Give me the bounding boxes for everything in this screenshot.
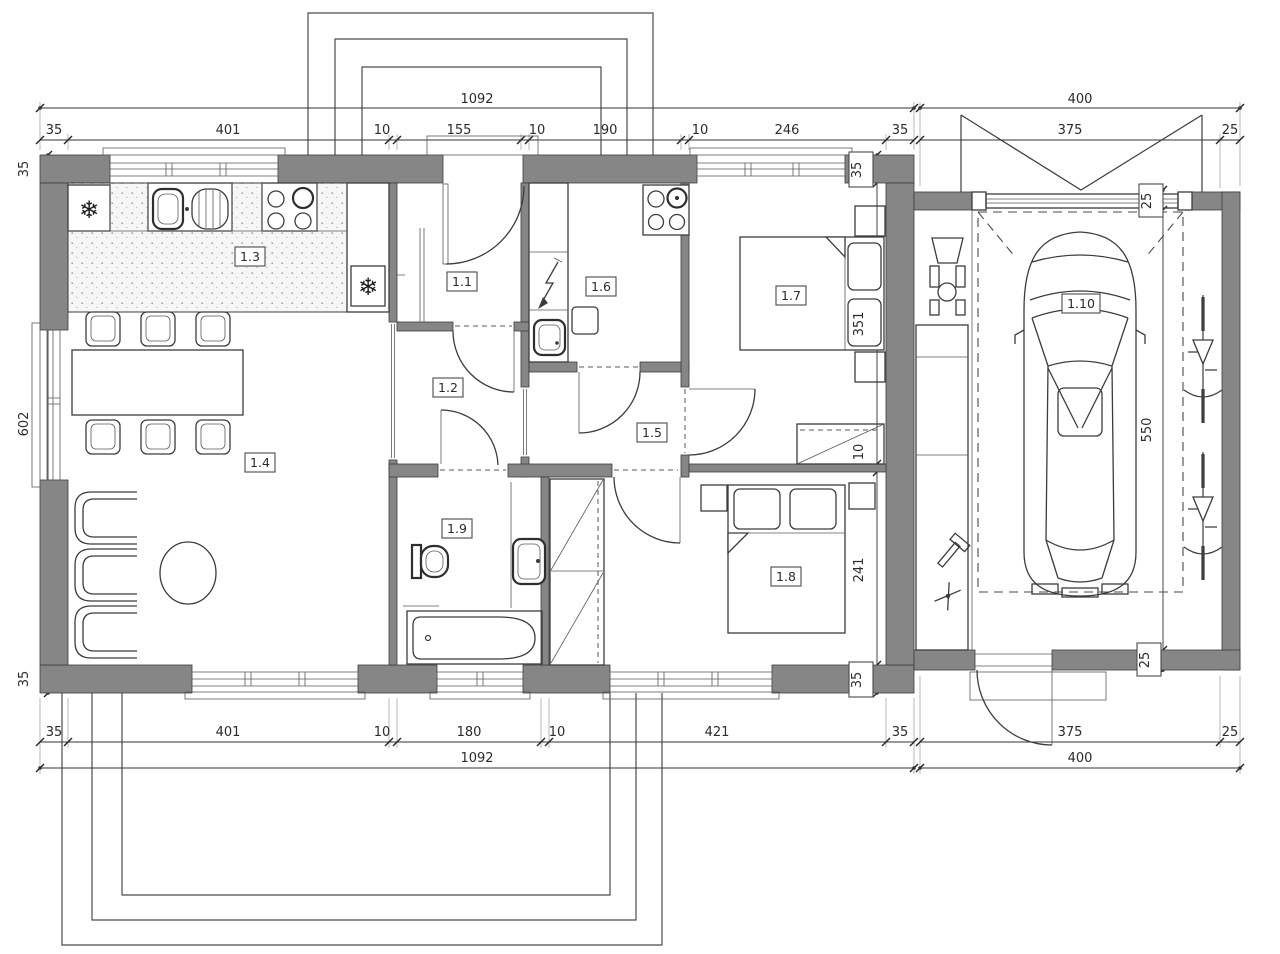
dim-garage-bottom-total: 400 [1068, 751, 1093, 766]
room-label-1-2: 1.2 [438, 380, 458, 395]
dim-garage-top-0: 375 [1058, 123, 1083, 138]
floor-plan-canvas: ❄ ❄ [0, 0, 1280, 954]
dim-bottom-1: 401 [216, 725, 241, 740]
dim-right-4: 35 [850, 672, 865, 689]
dim-garage-top-total: 400 [1068, 92, 1093, 107]
dim-top-4: 10 [529, 123, 546, 138]
passage-1-2-to-living [389, 322, 397, 460]
dim-bottom-6: 35 [892, 725, 909, 740]
dim-top-7: 246 [775, 123, 800, 138]
dim-left-2: 35 [17, 671, 32, 688]
room-1-3-kitchen [68, 183, 389, 312]
room-1-4-living [68, 312, 389, 665]
room-label-1-5: 1.5 [642, 425, 662, 440]
bathroom-window [430, 672, 530, 699]
passage-1-2-to-1-5 [521, 387, 529, 457]
dim-garage-right-1: 550 [1140, 418, 1155, 443]
dim-garage-right-0: 25 [1140, 193, 1155, 210]
room-label-1-1: 1.1 [452, 274, 472, 289]
dim-garage-top-1: 25 [1222, 123, 1239, 138]
living-side-window [32, 323, 60, 487]
dim-right-3: 241 [852, 558, 867, 583]
dim-top-total: 1092 [460, 92, 493, 107]
dim-top-2: 10 [374, 123, 391, 138]
room-label-1-4: 1.4 [250, 455, 270, 470]
dim-right-0: 35 [850, 162, 865, 179]
bedroom1-window [690, 148, 852, 176]
dim-top-5: 190 [593, 123, 618, 138]
dim-garage-right-2: 25 [1138, 652, 1153, 669]
kitchen-window [103, 148, 285, 176]
dim-right-2: 10 [852, 444, 867, 461]
room-label-1-6: 1.6 [591, 279, 611, 294]
dim-top-3: 155 [447, 123, 472, 138]
dim-bottom-3: 180 [457, 725, 482, 740]
room-label-1-8: 1.8 [776, 569, 796, 584]
room-1-10-garage [914, 210, 1222, 650]
living-window [185, 672, 365, 699]
room-label-1-9: 1.9 [447, 521, 467, 536]
room-1-1-entry [397, 183, 521, 322]
dim-bottom-4: 10 [549, 725, 566, 740]
dim-garage-bottom-1: 25 [1222, 725, 1239, 740]
dim-bottom-2: 10 [374, 725, 391, 740]
room-label-1-7: 1.7 [781, 288, 801, 303]
dim-right-1: 351 [852, 312, 867, 337]
dim-left-1: 602 [17, 412, 32, 437]
dim-bottom-total: 1092 [460, 751, 493, 766]
dim-left-0: 35 [17, 161, 32, 178]
dim-top-0: 35 [46, 123, 63, 138]
dim-bottom-0: 35 [46, 725, 63, 740]
room-1-6-technical [537, 183, 681, 362]
dim-top-8: 35 [892, 123, 909, 138]
dim-top-1: 401 [216, 123, 241, 138]
dim-garage-bottom-0: 375 [1058, 725, 1083, 740]
room-1-5-hall [529, 372, 681, 464]
dim-top-6: 10 [692, 123, 709, 138]
bedroom2-window [603, 672, 779, 699]
room-1-9-bathroom [397, 477, 541, 665]
room-label-1-10: 1.10 [1067, 296, 1095, 311]
floor-plan-drawing: ❄ ❄ [0, 0, 1280, 954]
room-label-1-3: 1.3 [240, 249, 260, 264]
dim-bottom-5: 421 [705, 725, 730, 740]
room-1-8-bedroom [549, 477, 886, 665]
